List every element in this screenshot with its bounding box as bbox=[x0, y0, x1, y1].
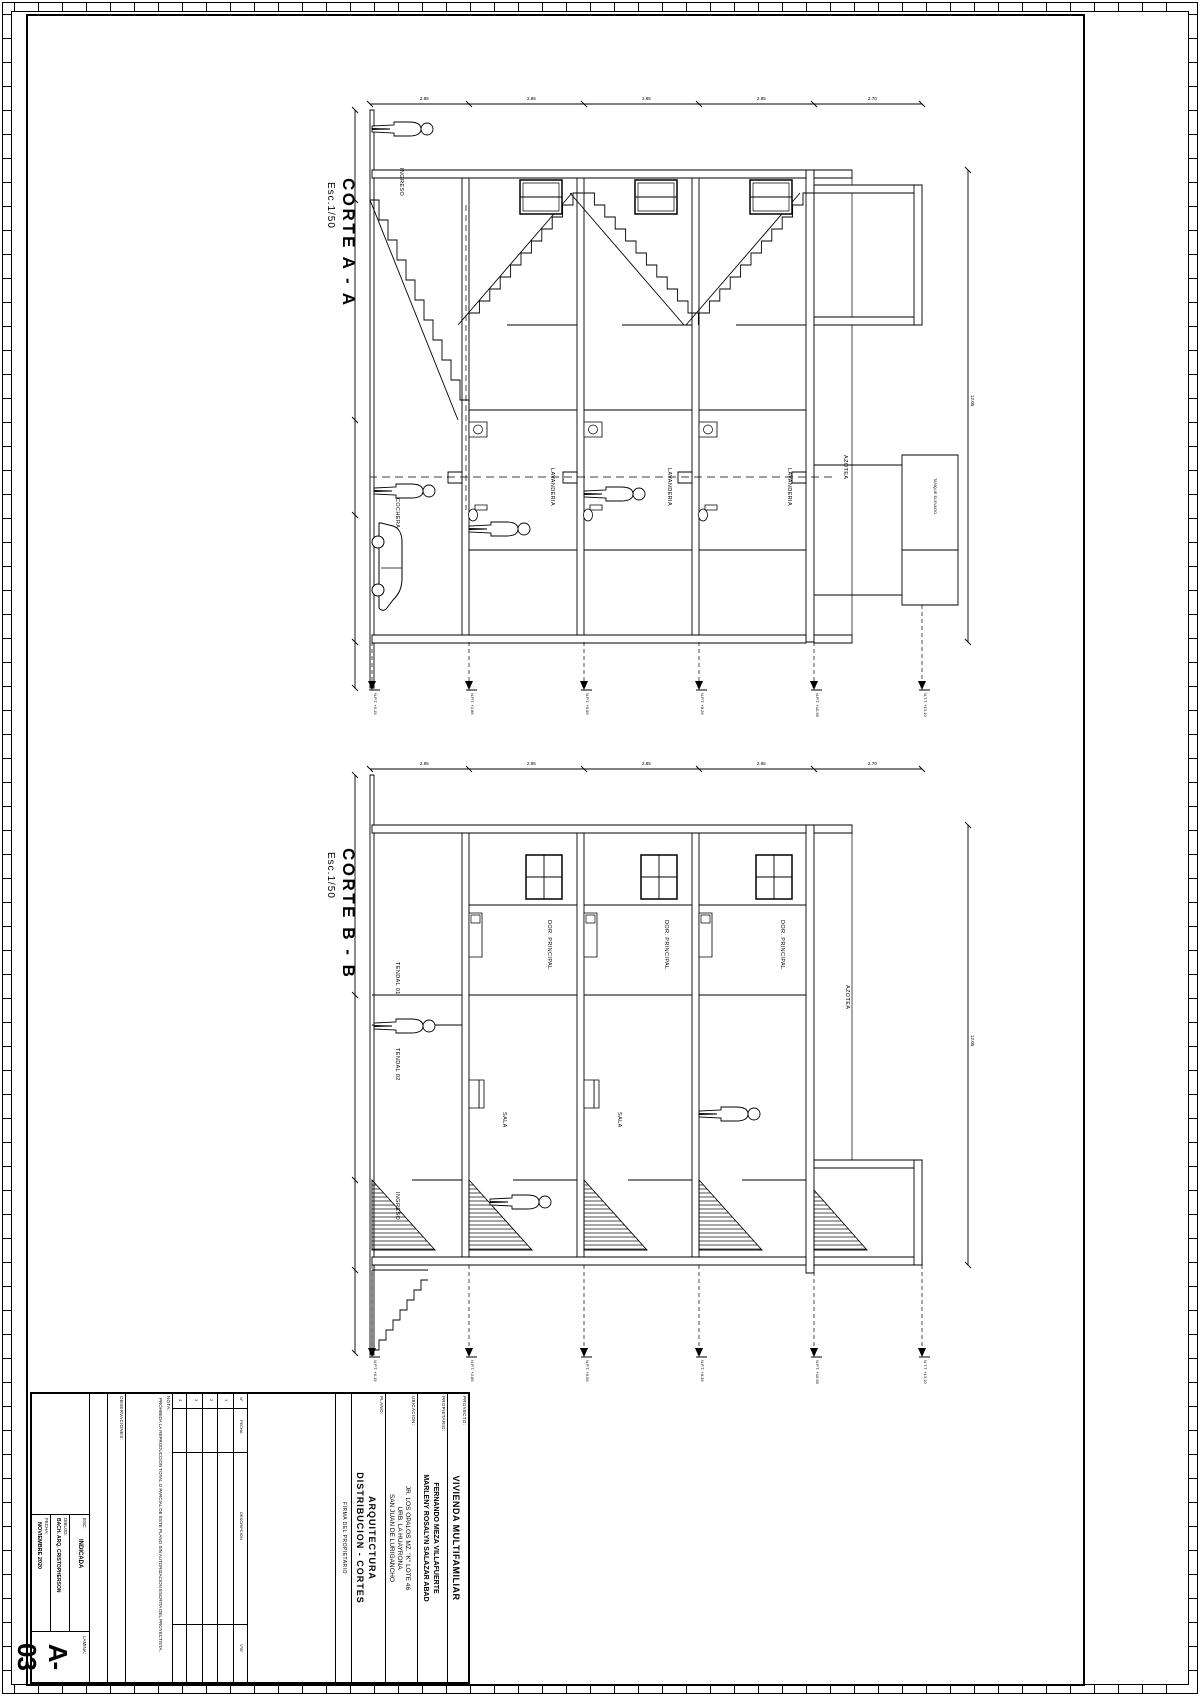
dibujo-value: BACH. ARQ. CRISTOPHERSON bbox=[55, 1518, 61, 1592]
corte-b-title: CORTE B - B bbox=[338, 848, 358, 979]
room-label-ingreso-a: INGRESO bbox=[398, 168, 404, 196]
dibujo-label: DIBUJO: bbox=[63, 1518, 68, 1536]
plan-sheet-screenshot: N.P.T. +0.15 N.P.T. +2.85 N.P.T. +5.55 N… bbox=[0, 0, 1200, 1696]
ruler-ticks-left bbox=[14, 3, 1186, 11]
lamina-label: LAMINA: bbox=[82, 1636, 87, 1654]
titleblock-ubicacion-cell: UBICACION: JR. LOS OPALOS MZ. "K" LOTE 4… bbox=[386, 1394, 418, 1682]
svg-text:N.T.T. +13.10: N.T.T. +13.10 bbox=[923, 693, 928, 717]
nota-label: NOTA: bbox=[166, 1396, 171, 1411]
svg-text:N.P.T. +10.95: N.P.T. +10.95 bbox=[815, 693, 820, 718]
titleblock-firma-label-cell: FIRMA DEL PROPIETARIO bbox=[336, 1394, 352, 1682]
corte-b-level-markers: N.P.T. +0.15 N.P.T. +2.85 N.P.T. +5.55 N… bbox=[368, 1265, 930, 1385]
room-label-azotea-a: AZOTEA bbox=[842, 455, 848, 479]
corte-a-level-markers: N.P.T. +0.15 N.P.T. +2.85 N.P.T. +5.55 N… bbox=[368, 605, 930, 718]
corte-a-stairs bbox=[370, 193, 813, 420]
svg-text:2.85: 2.85 bbox=[642, 96, 651, 101]
corte-a-scale: Esc.1/50 bbox=[325, 182, 336, 229]
person-icon bbox=[584, 487, 645, 501]
svg-text:2.70: 2.70 bbox=[868, 761, 877, 766]
svg-text:N.P.T. +2.85: N.P.T. +2.85 bbox=[470, 693, 475, 715]
svg-text:2.85: 2.85 bbox=[527, 761, 536, 766]
titleblock-plano-cell: PLANO: ARQUITECTURA DISTRIBUCION - CORTE… bbox=[352, 1394, 386, 1682]
svg-text:2.85: 2.85 bbox=[527, 96, 536, 101]
ubicacion-3: SAN JUAN DE LURIGANCHO bbox=[388, 1394, 395, 1682]
room-label-azotea-b: AZOTEA bbox=[844, 985, 850, 1009]
person-icon bbox=[374, 1019, 435, 1033]
svg-text:12.05: 12.05 bbox=[970, 395, 975, 407]
room-label-lavanderia-3: LAVANDERIA bbox=[786, 468, 792, 506]
svg-text:N.P.T. +8.25: N.P.T. +8.25 bbox=[700, 693, 705, 715]
titleblock-observaciones-cell: OBSERVACIONES: bbox=[108, 1394, 126, 1682]
room-label-ingreso-b: INGRESO bbox=[394, 1192, 400, 1220]
corte-a-windows bbox=[520, 180, 792, 214]
titleblock-spare-cell bbox=[90, 1394, 108, 1682]
plano-label: PLANO: bbox=[379, 1396, 384, 1414]
propietario-2: MARLENY ROSALYN SALAZAR ABAD bbox=[422, 1394, 429, 1682]
corte-a-drawing: N.P.T. +0.15 N.P.T. +2.85 N.P.T. +5.55 N… bbox=[337, 90, 982, 740]
corte-b-drawing: N.P.T. +0.15 N.P.T. +2.85 N.P.T. +5.55 N… bbox=[337, 755, 982, 1395]
drawing-sheet: N.P.T. +0.15 N.P.T. +2.85 N.P.T. +5.55 N… bbox=[0, 0, 1200, 1696]
room-label-tanque: TANQUE ELEVADO bbox=[933, 478, 938, 514]
proyecto-label: PROYECTO: bbox=[462, 1396, 467, 1425]
plano-2: DISTRIBUCION - CORTES bbox=[355, 1394, 365, 1682]
ruler-ticks-top bbox=[1189, 14, 1197, 1682]
room-label-tendal-01: TENDAL 01 bbox=[394, 962, 400, 995]
rev-row-3: 3 bbox=[194, 1399, 199, 1401]
corte-b-scale: Esc.1/50 bbox=[325, 852, 336, 899]
corte-b-furniture bbox=[469, 913, 712, 1108]
room-label-dor-2: DOR. PRINCIPAL bbox=[663, 920, 669, 970]
esc-label: ESC: bbox=[82, 1518, 87, 1529]
corte-b-people bbox=[374, 1019, 760, 1209]
svg-text:N.P.T. +8.25: N.P.T. +8.25 bbox=[700, 1360, 705, 1382]
proyecto-value: VIVIENDA MULTIFAMILIAR bbox=[451, 1394, 461, 1682]
room-label-lavanderia-2: LAVANDERIA bbox=[666, 468, 672, 506]
corte-b-stair-elevation bbox=[372, 1180, 867, 1353]
fecha-label: FECHA: bbox=[44, 1518, 49, 1535]
room-label-lavanderia-1: LAVANDERIA bbox=[549, 468, 555, 506]
svg-text:N.T.T. +13.10: N.T.T. +13.10 bbox=[923, 1360, 928, 1384]
svg-text:N.P.T. +10.95: N.P.T. +10.95 bbox=[815, 1360, 820, 1385]
room-label-sala-2: SALA bbox=[616, 1112, 622, 1128]
svg-text:12.05: 12.05 bbox=[970, 1035, 975, 1047]
titleblock-nota-cell: NOTA: PROHIBIDA LA REPRODUCCION TOTAL O … bbox=[126, 1394, 173, 1682]
ubicacion-2: URB. LA HUAYRONA bbox=[396, 1394, 403, 1682]
room-label-cochera: COCHERA bbox=[394, 498, 400, 528]
svg-text:2.85: 2.85 bbox=[757, 761, 766, 766]
rev-row-1: 1 bbox=[224, 1399, 229, 1401]
propietario-label: PROPIETARIO: bbox=[441, 1396, 446, 1431]
svg-text:2.70: 2.70 bbox=[868, 96, 877, 101]
lamina-number: A-03 bbox=[11, 1631, 73, 1682]
corte-a-fixtures bbox=[372, 422, 717, 610]
plano-1: ARQUITECTURA bbox=[367, 1394, 377, 1682]
ubicacion-1: JR. LOS OPALOS MZ. "K" LOTE 46 bbox=[404, 1394, 411, 1682]
ruler-ticks-bottom bbox=[3, 14, 11, 1682]
corte-a-title: CORTE A - A bbox=[338, 178, 358, 308]
svg-text:2.85: 2.85 bbox=[757, 96, 766, 101]
entry-steps bbox=[372, 1280, 428, 1350]
svg-text:2.85: 2.85 bbox=[420, 761, 429, 766]
titleblock-signature-box bbox=[248, 1394, 336, 1682]
svg-text:N.P.T. +5.55: N.P.T. +5.55 bbox=[585, 693, 590, 715]
corte-b-windows bbox=[526, 855, 792, 899]
title-block: PROYECTO: VIVIENDA MULTIFAMILIAR PROPIET… bbox=[30, 1392, 470, 1684]
person-icon bbox=[699, 1107, 760, 1121]
svg-text:N.P.T. +0.15: N.P.T. +0.15 bbox=[373, 693, 378, 715]
rev-col-vb: V°B° bbox=[239, 1644, 244, 1653]
svg-text:2.85: 2.85 bbox=[420, 96, 429, 101]
rev-row-4: 4 bbox=[178, 1399, 183, 1401]
esc-value: INDICADA bbox=[77, 1539, 83, 1568]
rev-col-desc: DESCRIPCION bbox=[239, 1512, 244, 1540]
person-icon bbox=[490, 1195, 551, 1209]
corte-b-dimensions: 2.70 2.85 2.85 2.85 2.85 12.05 bbox=[352, 761, 975, 1356]
ruler-ticks-right bbox=[14, 1685, 1186, 1693]
rev-col-num: N° bbox=[239, 1397, 244, 1402]
car-icon bbox=[372, 523, 402, 610]
ubicacion-label: UBICACION: bbox=[411, 1396, 416, 1425]
nota-text: PROHIBIDA LA REPRODUCCION TOTAL O PARCIA… bbox=[156, 1398, 163, 1676]
rev-col-fecha: FECHA bbox=[239, 1420, 244, 1434]
corte-a-people bbox=[372, 122, 645, 536]
observaciones-label: OBSERVACIONES: bbox=[119, 1396, 124, 1440]
titleblock-propietario-cell: PROPIETARIO: FERNANDO MEZA VILLAFUERTE M… bbox=[418, 1394, 448, 1682]
person-icon bbox=[469, 522, 530, 536]
room-label-dor-3: DOR. PRINCIPAL bbox=[779, 920, 785, 970]
rev-row-2: 2 bbox=[209, 1399, 214, 1401]
svg-text:N.P.T. +2.85: N.P.T. +2.85 bbox=[470, 1360, 475, 1382]
person-icon bbox=[374, 484, 435, 498]
svg-text:N.P.T. +0.15: N.P.T. +0.15 bbox=[373, 1360, 378, 1382]
titleblock-revision-table: N° FECHA DESCRIPCION V°B° 1 2 3 4 bbox=[173, 1394, 248, 1682]
titleblock-proyecto-cell: PROYECTO: VIVIENDA MULTIFAMILIAR bbox=[448, 1394, 468, 1682]
room-label-sala-1: SALA bbox=[501, 1112, 507, 1128]
person-icon bbox=[372, 122, 433, 136]
svg-text:N.P.T. +5.55: N.P.T. +5.55 bbox=[585, 1360, 590, 1382]
fecha-value: NOVIEMBRE 2020 bbox=[36, 1522, 42, 1569]
svg-text:2.85: 2.85 bbox=[642, 761, 651, 766]
firma-label: FIRMA DEL PROPIETARIO bbox=[341, 1394, 347, 1682]
room-label-tendal-02: TENDAL 02 bbox=[394, 1048, 400, 1081]
titleblock-bottom-band: ESC: INDICADA DIBUJO: BACH. ARQ. CRISTOP… bbox=[32, 1394, 90, 1682]
room-label-dor-1: DOR. PRINCIPAL bbox=[546, 920, 552, 970]
propietario-1: FERNANDO MEZA VILLAFUERTE bbox=[432, 1394, 439, 1682]
